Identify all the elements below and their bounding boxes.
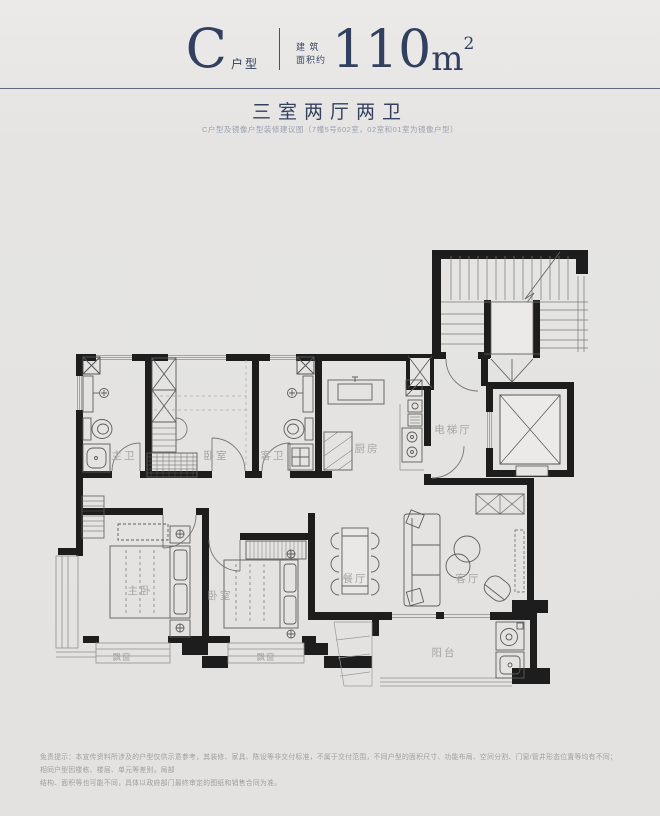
room-label-master-bath: 主卫 [112,450,137,462]
section-divider-line [0,88,660,89]
hall-cabinet [82,496,104,538]
guest-bath-fixtures [284,376,313,470]
unit-type-letter: C [186,22,227,76]
header: C 户型 建 筑 面积约 110 m 2 [0,22,660,76]
area-caption-line2: 面积约 [296,54,326,67]
kitchen-fixtures [324,377,424,470]
room-label-bedroom-second: 卧室 [208,589,233,602]
room-label-master-bedroom: 主卧 [128,584,153,597]
master-bedroom-furniture [110,524,190,637]
second-bedroom-furniture [224,541,306,638]
room-label-elevator-hall: 电梯厅 [434,423,472,436]
bedroom-top-furniture [147,358,250,477]
balcony-fixtures [334,612,524,686]
floor-plan: 主卫 卧室 客卫 厨房 电梯厅 主卧 卧室 餐厅 客厅 阳台 飘窗 飘窗 [0,240,660,710]
unit-type-label: 户型 [231,55,259,72]
room-label-kitchen: 厨房 [355,442,380,455]
area-exponent: 2 [464,34,475,54]
stair-landing [484,302,540,382]
room-label-bay-window-right: 飘窗 [256,652,275,662]
area-caption: 建 筑 面积约 [296,41,326,67]
disclaimer: 免责提示：本宣传资料所涉及的户型仅供示意参考，其装修、家具、陈设等非交付标准，不… [40,751,622,790]
bay-windows [56,556,304,663]
layout-note: C户型及镜像户型装修建议图（7幢5号602室，02室和01室为镜像户型） [0,124,660,135]
room-label-living: 客厅 [456,572,481,585]
area-number: 110 [332,24,431,76]
living-room-furniture [404,494,524,606]
layout-title: 三室两厅两卫 [0,97,660,124]
master-bath-fixtures [83,376,112,472]
room-label-bedroom-top: 卧室 [204,449,229,462]
disclaimer-line2: 结构、面积等也可能不同，具体以政府部门最终审定的图纸和销售合同为准。 [40,777,622,790]
room-label-dining: 餐厅 [343,572,368,585]
area-caption-line1: 建 筑 [296,41,326,54]
area-unit: m [431,42,463,76]
flyer-page: C 户型 建 筑 面积约 110 m 2 三室两厅两卫 C户型及镜像户型装修建议… [0,0,660,816]
header-divider [279,28,280,70]
room-label-bay-window-left: 飘窗 [112,652,131,662]
room-label-balcony: 阳台 [432,646,457,659]
disclaimer-line1: 免责提示：本宣传资料所涉及的户型仅供示意参考，其装修、家具、陈设等非交付标准，不… [40,751,622,777]
elevator-shaft [500,395,560,476]
room-label-guest-bath: 客卫 [261,449,286,462]
duct-shaft-entry [408,356,432,388]
